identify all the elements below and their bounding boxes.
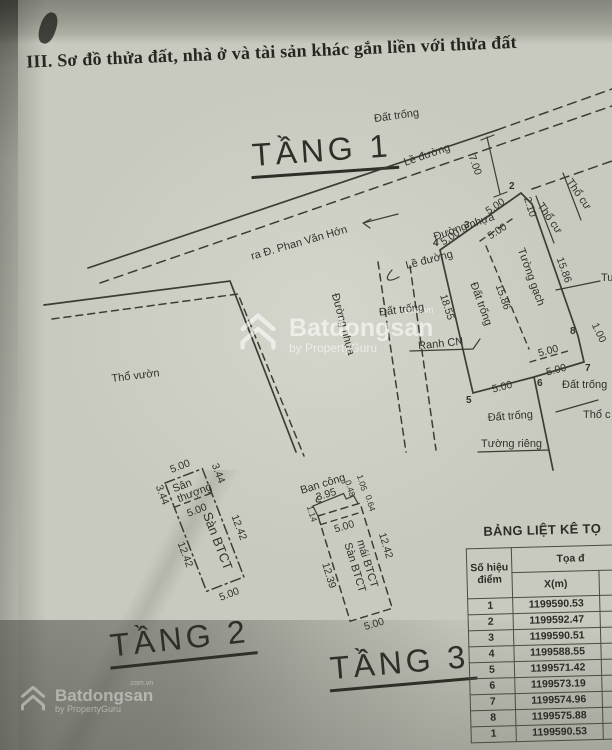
point-marker: 5 (466, 395, 472, 406)
dim-label: 1.00 (589, 321, 609, 345)
header-line: Số hiệu (467, 561, 511, 574)
area-label: Thổ vườn (111, 367, 160, 385)
dim-label: 5.00 (363, 616, 386, 633)
exit-street-label: ra Đ. Phan Văn Hớn (250, 224, 349, 263)
area-label: Đất trống (373, 107, 419, 125)
area-label: Đất trống (467, 281, 494, 328)
dim-label: 5.00 (491, 379, 514, 396)
cell-point: 3 (468, 630, 513, 647)
floor3-diagram: Ban công 3.95 0.48 1.05 1.14 0.64 5.00 1… (295, 464, 414, 640)
private-wall-line (534, 377, 553, 470)
dim-label: 5.00 (217, 585, 241, 604)
dim-label: 3.44 (209, 462, 228, 486)
point-marker: 2 (509, 181, 515, 192)
dim-label: 3.44 (153, 483, 172, 507)
point-marker: 3 (464, 220, 470, 231)
dim-label: 7.00 (466, 153, 484, 176)
cell-point: 5 (469, 662, 514, 679)
branch-road-dashed-2 (410, 266, 436, 450)
dim-label: 12.42 (175, 540, 196, 569)
area-label: Thổ c (583, 409, 611, 421)
floor1-plot-boundary (410, 173, 600, 470)
dim-label: 18.55 (437, 293, 457, 322)
floor1-labels: Đất trống Lề đường Đường nhựa 7.00 ra Đ.… (111, 107, 612, 450)
dim-label: 5.00 (333, 518, 356, 535)
branch-road-dashed-1 (378, 262, 406, 452)
road-edge-dashed-ext (497, 89, 612, 130)
coordinate-table-section: BẢNG LIỆT KÊ TỌ Số hiệu điểm Tọa đ X(m) … (465, 520, 612, 744)
dim-label: 12.42 (376, 531, 395, 560)
header-y-clipped (599, 570, 612, 596)
dim-label: 0.64 (363, 494, 377, 513)
area-label: Đất trống (378, 301, 424, 318)
area-label: Tu (601, 272, 612, 284)
floor2-diagram: 5.00 3.44 3.44 Sân thượng 5.00 12.42 12.… (147, 447, 268, 612)
curb-leader (387, 270, 399, 280)
garden-block-edge (44, 281, 296, 452)
cell-point: 2 (468, 614, 513, 631)
dim-label: 15.86 (493, 283, 513, 312)
dim-label: 1.14 (305, 504, 319, 523)
header-point-number: Số hiệu điểm (466, 548, 512, 599)
cell-point: 1 (471, 726, 516, 743)
dim-label: 1.05 (355, 473, 369, 492)
dim-label: 5.00 (168, 457, 192, 476)
cell-point: 8 (471, 710, 516, 727)
dim-label: 2.10 (521, 196, 539, 219)
point-marker: 6 (537, 378, 543, 389)
dim-label: 12.42 (229, 513, 250, 542)
header-x: X(m) (512, 570, 600, 597)
point-marker: 4 (433, 238, 439, 249)
coordinate-table-title: BẢNG LIỆT KÊ TỌ (483, 520, 612, 539)
header-line: điểm (467, 573, 511, 586)
cell-point: 6 (470, 678, 515, 695)
coordinate-table: Số hiệu điểm Tọa đ X(m) 11199590.53 2119… (466, 544, 612, 743)
area-label: Thổ cư (564, 177, 594, 213)
area-label: Đất trống (487, 409, 533, 424)
scanned-land-document: III. Sơ đồ thửa đất, nhà ở và tài sản kh… (0, 0, 612, 750)
cell-point: 1 (468, 598, 513, 615)
area-label: Đất trống (562, 379, 607, 391)
wall-label: Tường riêng (481, 438, 542, 450)
tuong-rieng-underline (478, 450, 549, 452)
dim-label: 5.00 (484, 196, 508, 217)
point-marker: 8 (570, 326, 576, 337)
cell-point: 4 (469, 646, 514, 663)
cell-point: 7 (470, 694, 515, 711)
wall-label: Tường gạch (515, 247, 547, 308)
dim-label: 12.39 (319, 561, 338, 590)
dim-label: 5.00 (545, 362, 568, 379)
road-label: Lề đường (404, 248, 454, 271)
cell-x: 1199590.53 (516, 723, 603, 741)
dim-label: 15.86 (554, 256, 574, 285)
point-marker: 7 (585, 363, 591, 374)
dim-label: 5.00 (537, 343, 560, 360)
exit-arrow (363, 214, 398, 228)
road-label: Đường nhựa (329, 292, 357, 357)
road-centerline-dashed (100, 106, 612, 283)
header-coordinates: Tọa đ (511, 545, 612, 573)
dim-label: 0.48 (343, 479, 357, 498)
